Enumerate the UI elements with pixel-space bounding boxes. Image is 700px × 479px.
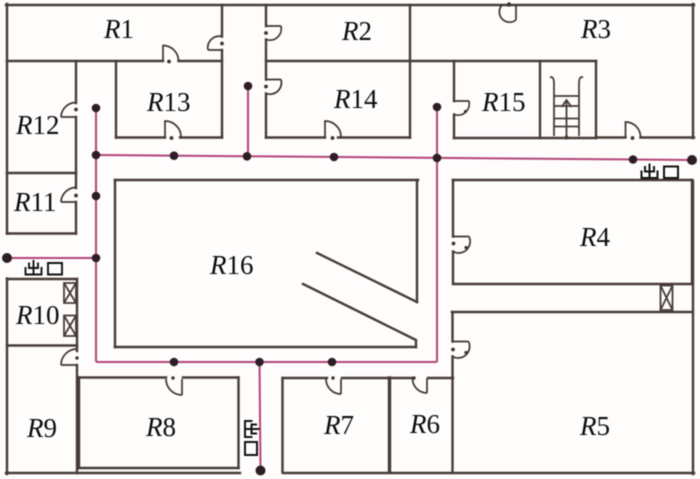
svg-text:R15: R15 (481, 87, 526, 117)
svg-text:R16: R16 (209, 250, 254, 280)
svg-text:R9: R9 (26, 413, 57, 443)
svg-text:R10: R10 (15, 300, 60, 330)
svg-text:R12: R12 (15, 110, 60, 140)
svg-text:R4: R4 (579, 222, 611, 252)
svg-text:R5: R5 (579, 411, 610, 441)
svg-text:R14: R14 (333, 84, 378, 114)
svg-text:R11: R11 (13, 187, 57, 217)
svg-text:R3: R3 (580, 14, 611, 44)
svg-text:R1: R1 (103, 14, 134, 44)
svg-text:R13: R13 (146, 87, 191, 117)
svg-text:R8: R8 (145, 412, 176, 442)
svg-text:R2: R2 (341, 16, 372, 46)
svg-text:R6: R6 (409, 409, 440, 439)
svg-text:R7: R7 (323, 410, 354, 440)
